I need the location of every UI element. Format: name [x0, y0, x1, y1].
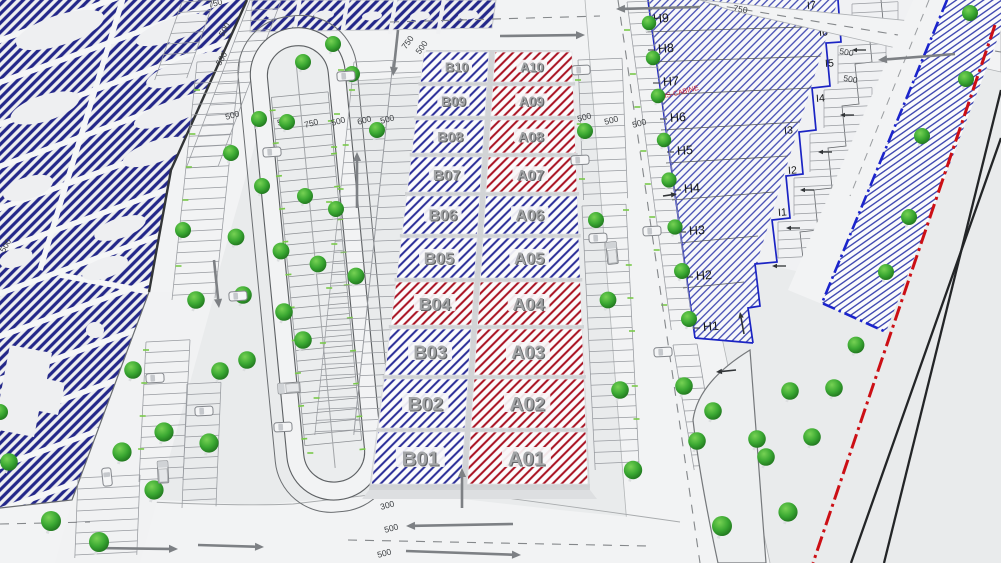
svg-text:B04: B04 [419, 294, 451, 314]
svg-text:B01: B01 [402, 448, 439, 470]
svg-text:A07: A07 [517, 168, 544, 184]
svg-text:A03: A03 [511, 342, 545, 363]
svg-text:H3: H3 [689, 223, 706, 238]
svg-text:I3: I3 [784, 124, 794, 137]
svg-text:I1: I1 [778, 206, 788, 219]
svg-text:H7: H7 [663, 74, 680, 89]
svg-text:A04: A04 [513, 294, 545, 314]
svg-text:B10: B10 [445, 60, 468, 75]
svg-text:B09: B09 [441, 94, 466, 109]
svg-text:B05: B05 [424, 250, 454, 268]
svg-text:A05: A05 [514, 250, 544, 268]
svg-text:I5: I5 [825, 57, 835, 70]
svg-text:A02: A02 [509, 394, 545, 416]
svg-text:H6: H6 [670, 110, 687, 125]
svg-text:I7: I7 [807, 0, 817, 12]
svg-text:H8: H8 [658, 41, 675, 56]
svg-text:B03: B03 [413, 342, 447, 363]
svg-text:H5: H5 [677, 143, 694, 158]
svg-text:B08: B08 [437, 129, 463, 145]
svg-text:A09: A09 [519, 94, 544, 109]
svg-text:B07: B07 [433, 168, 460, 184]
svg-text:H1: H1 [703, 319, 720, 334]
svg-text:A08: A08 [518, 129, 544, 145]
svg-text:B06: B06 [429, 208, 458, 225]
svg-text:B02: B02 [408, 394, 444, 416]
svg-text:A01: A01 [508, 448, 545, 470]
svg-text:A06: A06 [515, 208, 544, 225]
svg-text:A10: A10 [520, 60, 543, 75]
svg-text:I2: I2 [788, 164, 798, 177]
svg-text:I4: I4 [816, 92, 826, 105]
svg-text:H2: H2 [696, 268, 713, 283]
svg-text:H4: H4 [684, 181, 701, 196]
